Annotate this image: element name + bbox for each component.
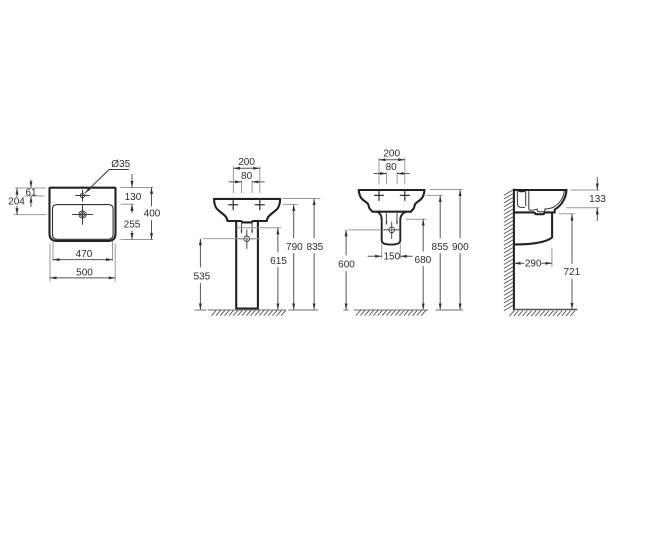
svg-text:204: 204 xyxy=(8,197,25,208)
svg-text:61: 61 xyxy=(25,188,37,199)
svg-text:200: 200 xyxy=(383,148,400,159)
svg-text:80: 80 xyxy=(386,162,398,173)
svg-text:680: 680 xyxy=(415,255,432,266)
svg-text:470: 470 xyxy=(76,249,93,260)
svg-text:133: 133 xyxy=(589,194,606,205)
svg-text:Ø35: Ø35 xyxy=(111,159,130,170)
svg-text:150: 150 xyxy=(383,252,400,263)
svg-text:615: 615 xyxy=(270,256,287,267)
svg-text:130: 130 xyxy=(125,192,142,203)
svg-text:255: 255 xyxy=(124,220,141,231)
svg-text:535: 535 xyxy=(194,272,211,283)
svg-text:721: 721 xyxy=(563,267,580,278)
svg-text:400: 400 xyxy=(144,209,161,220)
svg-text:900: 900 xyxy=(452,242,469,253)
svg-text:290: 290 xyxy=(525,259,542,270)
svg-text:500: 500 xyxy=(76,267,93,278)
svg-text:790: 790 xyxy=(286,242,303,253)
svg-text:600: 600 xyxy=(338,260,355,271)
svg-text:835: 835 xyxy=(307,242,324,253)
svg-text:855: 855 xyxy=(432,242,449,253)
svg-text:80: 80 xyxy=(241,171,253,182)
svg-text:200: 200 xyxy=(238,157,255,168)
